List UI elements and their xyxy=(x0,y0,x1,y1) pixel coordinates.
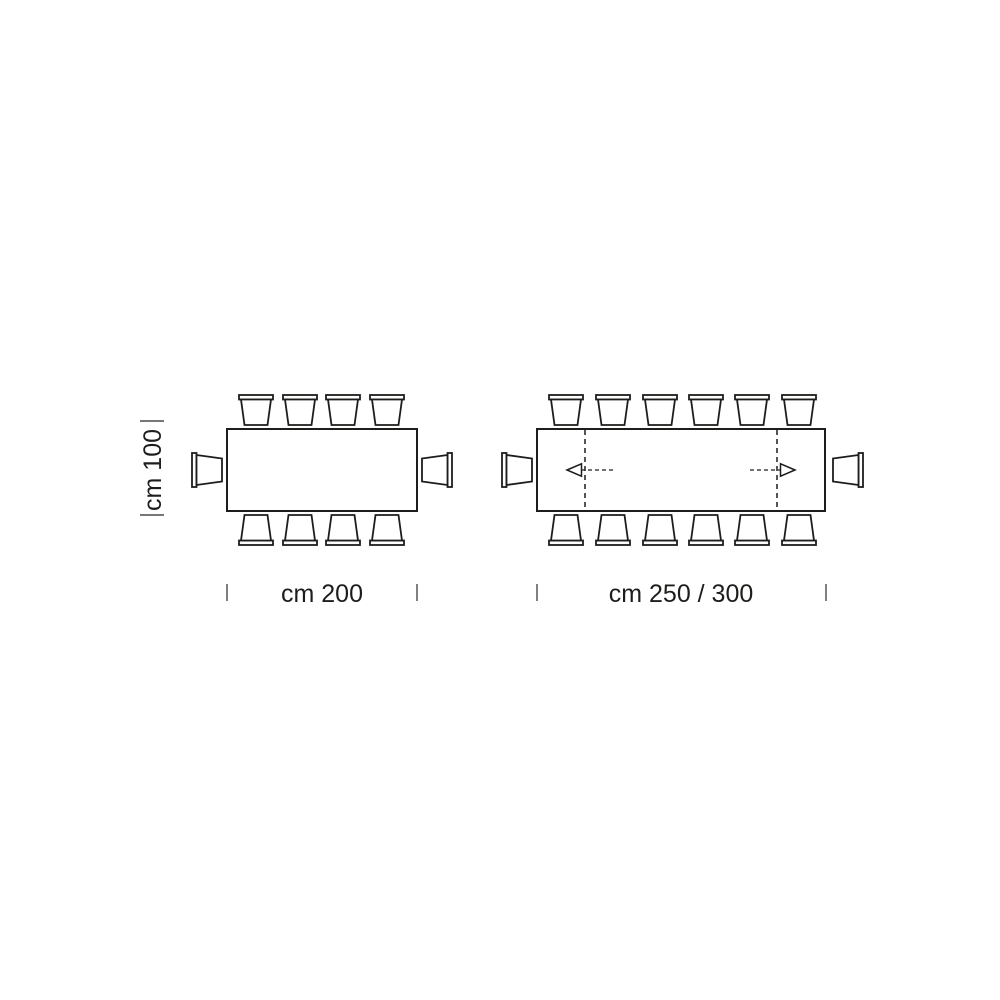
chair xyxy=(283,395,317,425)
fixed-table-top xyxy=(227,429,417,511)
depth-dimension: cm 100 xyxy=(139,421,167,515)
chair xyxy=(549,395,583,425)
chair xyxy=(596,395,630,425)
extendable-table-chairs-bottom xyxy=(549,515,816,545)
depth-dimension-label: cm 100 xyxy=(139,429,167,511)
chair xyxy=(643,515,677,545)
chair xyxy=(326,515,360,545)
chair xyxy=(192,453,222,487)
chair xyxy=(782,515,816,545)
fixed-table-chairs-bottom xyxy=(239,515,404,545)
chair xyxy=(239,395,273,425)
fixed-table-chairs-top xyxy=(239,395,404,425)
chair xyxy=(549,515,583,545)
chair xyxy=(735,395,769,425)
extendable-table-width-dimension: cm 250 / 300 xyxy=(537,580,826,608)
chair xyxy=(370,515,404,545)
fixed-table-group: cm 100 cm 200 xyxy=(139,395,452,608)
chair xyxy=(643,395,677,425)
chair xyxy=(422,453,452,487)
extendable-table-group: cm 250 / 300 xyxy=(502,395,863,608)
chair xyxy=(283,515,317,545)
chair xyxy=(689,515,723,545)
chair xyxy=(326,395,360,425)
extendable-table-chairs-top xyxy=(549,395,816,425)
chair xyxy=(735,515,769,545)
chair xyxy=(782,395,816,425)
chair xyxy=(689,395,723,425)
chair xyxy=(502,453,532,487)
chair xyxy=(833,453,863,487)
chair xyxy=(596,515,630,545)
fixed-table-width-label: cm 200 xyxy=(281,580,363,608)
fixed-table-width-dimension: cm 200 xyxy=(227,580,417,608)
chair xyxy=(239,515,273,545)
spec-sheet: cm 100 cm 200 xyxy=(0,0,1000,1000)
dimension-diagram: cm 100 cm 200 xyxy=(0,0,1000,1000)
chair xyxy=(370,395,404,425)
extendable-table-width-label: cm 250 / 300 xyxy=(609,580,754,608)
